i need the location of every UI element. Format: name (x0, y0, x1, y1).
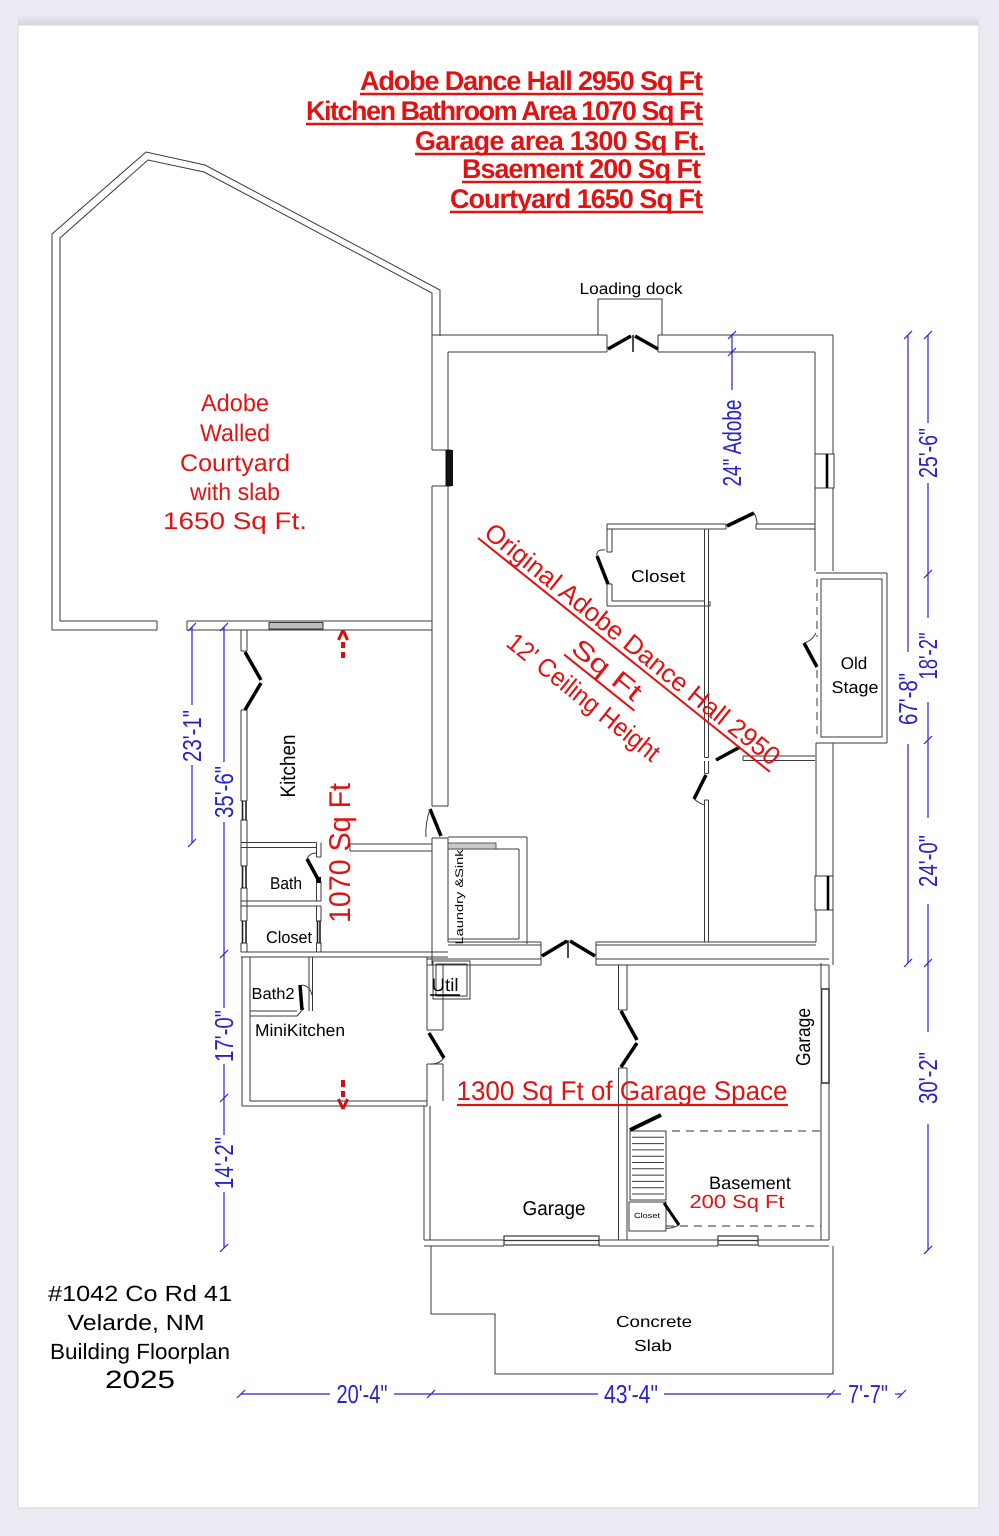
svg-text:20'-4": 20'-4" (337, 1379, 388, 1409)
svg-text:Garage area 1300 Sq Ft.: Garage area 1300 Sq Ft. (415, 126, 705, 156)
svg-text:MiniKitchen: MiniKitchen (255, 1021, 345, 1040)
svg-text:Laundry &Sink: Laundry &Sink (454, 849, 466, 945)
svg-text:Garage: Garage (523, 1198, 586, 1220)
svg-text:35'-6": 35'-6" (209, 766, 239, 818)
svg-text:Velarde, NM: Velarde, NM (68, 1310, 205, 1335)
svg-text:24'-0": 24'-0" (913, 835, 943, 887)
svg-text:1070 Sq Ft: 1070 Sq Ft (324, 782, 357, 923)
svg-text:1300 Sq Ft of Garage Space: 1300 Sq Ft of Garage Space (457, 1076, 788, 1106)
svg-text:#1042 Co Rd 41: #1042 Co Rd 41 (48, 1281, 232, 1306)
svg-text:Closet: Closet (634, 1211, 661, 1220)
svg-text:Closet: Closet (631, 567, 685, 586)
svg-text:25'-6": 25'-6" (913, 428, 943, 478)
svg-text:23'-1": 23'-1" (177, 710, 207, 762)
svg-text:Kitchen Bathroom Area 1070 Sq: Kitchen Bathroom Area 1070 Sq Ft (306, 96, 703, 126)
svg-text:Adobe: Adobe (201, 390, 269, 417)
svg-text:Courtyard 1650 Sq Ft: Courtyard 1650 Sq Ft (450, 184, 703, 214)
svg-text:Closet: Closet (266, 928, 312, 947)
svg-text:Concrete: Concrete (616, 1314, 692, 1331)
svg-text:Stage: Stage (832, 678, 879, 697)
svg-text:with slab: with slab (189, 479, 280, 506)
svg-text:18'-2": 18'-2" (913, 633, 943, 680)
svg-text:Garage: Garage (793, 1008, 815, 1066)
svg-text:Bath2: Bath2 (252, 986, 295, 1003)
svg-text:Bsaement 200 Sq Ft: Bsaement 200 Sq Ft (462, 154, 701, 184)
svg-text:14'-2": 14'-2" (209, 1137, 239, 1189)
svg-text:Building Floorplan: Building Floorplan (50, 1339, 230, 1364)
svg-text:7'-7": 7'-7" (848, 1379, 888, 1409)
svg-text:1650 Sq Ft.: 1650 Sq Ft. (163, 508, 307, 535)
svg-text:Slab: Slab (634, 1338, 672, 1355)
svg-text:Loading dock: Loading dock (580, 281, 684, 298)
svg-text:Walled: Walled (200, 420, 270, 447)
svg-text:30'-2": 30'-2" (913, 1052, 943, 1104)
svg-text:Util: Util (432, 975, 459, 995)
svg-text:43'-4": 43'-4" (604, 1379, 658, 1409)
svg-text:2025: 2025 (105, 1366, 175, 1394)
svg-text:Courtyard: Courtyard (180, 450, 290, 477)
svg-text:Basement: Basement (709, 1173, 791, 1193)
svg-text:200 Sq Ft: 200 Sq Ft (690, 1192, 786, 1213)
svg-text:67'-8": 67'-8" (893, 673, 923, 725)
svg-text:Bath: Bath (270, 874, 302, 893)
svg-text:24" Adobe: 24" Adobe (717, 400, 747, 487)
svg-text:Old: Old (841, 654, 867, 673)
svg-text:Kitchen: Kitchen (277, 735, 300, 798)
svg-text:17'-0": 17'-0" (209, 1010, 239, 1062)
svg-text:Adobe Dance Hall 2950 Sq Ft: Adobe Dance Hall 2950 Sq Ft (360, 66, 703, 96)
